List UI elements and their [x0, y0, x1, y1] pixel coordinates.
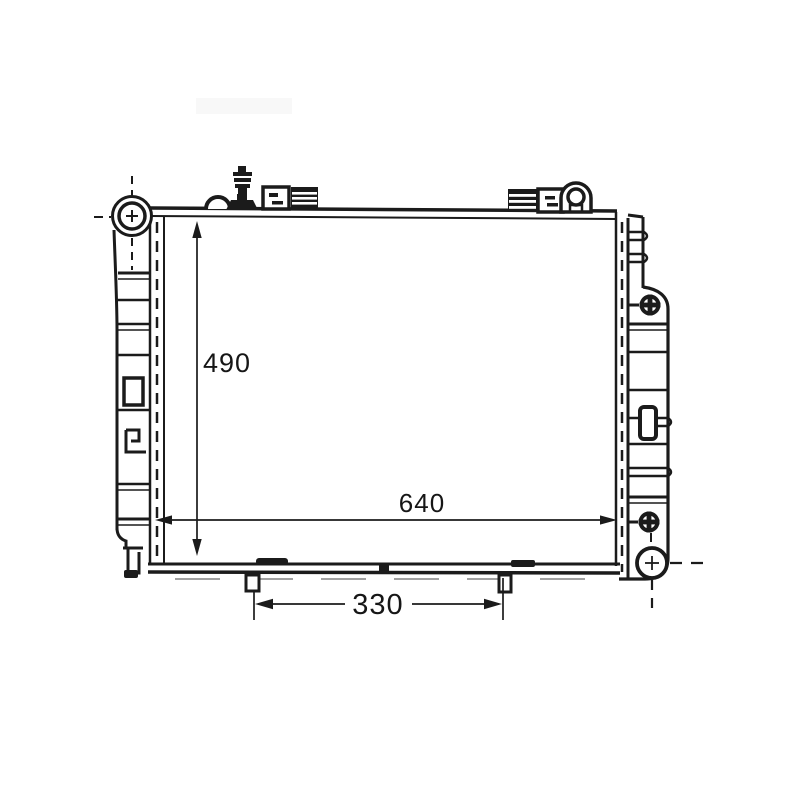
dimension-width-arrow-right — [600, 515, 617, 524]
dimension-height: 490 — [192, 221, 251, 556]
right-slot — [640, 407, 656, 439]
core-right-strip — [616, 212, 628, 579]
dimension-width: 640 — [155, 488, 617, 525]
striped-block-right — [508, 189, 537, 212]
left-tank — [114, 230, 150, 578]
right-boss-lower — [629, 512, 660, 533]
dimension-height-arrow-up — [192, 221, 201, 238]
left-bracket-rect — [124, 378, 143, 405]
striped-block-left — [291, 187, 318, 208]
dimension-bottom-span: 330 — [254, 578, 503, 621]
ring-mount — [561, 183, 591, 212]
dimension-span-arrow-left — [255, 599, 273, 609]
drain-screw — [226, 166, 258, 210]
connector-box-left — [263, 187, 289, 209]
bottom-peg-right — [499, 575, 511, 592]
right-boss-upper — [629, 295, 661, 316]
dimension-height-arrow-down — [192, 539, 201, 556]
dimension-span-label: 330 — [352, 589, 403, 621]
dimension-width-label: 640 — [399, 488, 445, 518]
radiator-diagram: 490 640 330 — [0, 0, 800, 800]
dimension-height-label: 490 — [203, 348, 251, 378]
radiator-technical-drawing: 490 640 330 — [0, 0, 800, 800]
bottom-tab-right — [511, 560, 535, 567]
right-mounting-hole — [637, 548, 667, 578]
scan-artifact — [196, 98, 292, 114]
left-foot — [117, 528, 143, 578]
core-left-strip — [150, 211, 164, 564]
left-mounting-eye — [94, 176, 152, 270]
right-tank — [619, 215, 704, 612]
bottom-peg-left — [246, 575, 259, 591]
bleed-arch — [206, 197, 230, 209]
left-bracket-l — [126, 430, 146, 452]
bottom-tab-left — [256, 558, 288, 565]
bottom-notch — [379, 563, 389, 573]
dimension-span-arrow-right — [484, 599, 502, 609]
